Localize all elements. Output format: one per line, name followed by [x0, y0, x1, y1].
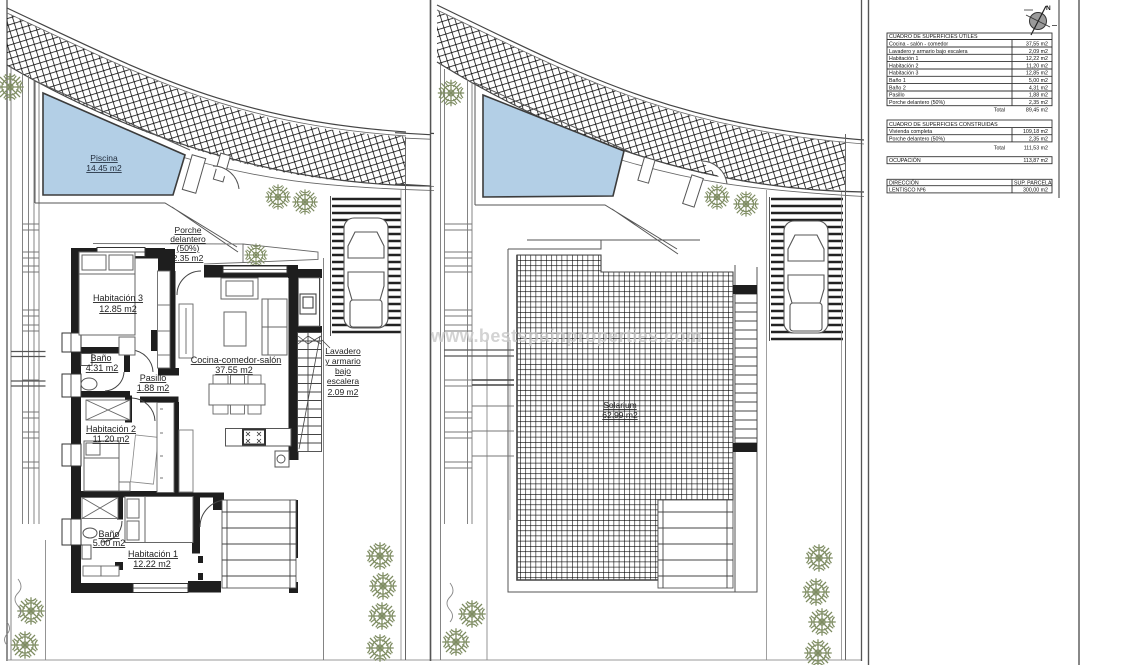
svg-text:12,22 m2: 12,22 m2 — [1026, 56, 1048, 62]
svg-text:Solarium: Solarium — [603, 400, 637, 410]
svg-text:2,35 m2: 2,35 m2 — [1029, 136, 1048, 142]
svg-text:5,00 m2: 5,00 m2 — [1029, 78, 1048, 84]
svg-text:Porche delantero (50%): Porche delantero (50%) — [889, 100, 945, 106]
svg-text:escalera: escalera — [327, 376, 359, 386]
svg-text:1.88 m2: 1.88 m2 — [137, 383, 170, 393]
svg-text:12.22 m2: 12.22 m2 — [133, 559, 171, 569]
svg-text:Habitación 2: Habitación 2 — [86, 424, 136, 434]
svg-text:2.35 m2: 2.35 m2 — [173, 253, 204, 263]
svg-text:y armario: y armario — [325, 356, 361, 366]
svg-text:Vivienda completa: Vivienda completa — [889, 129, 932, 135]
svg-text:OCUPACIÓN: OCUPACIÓN — [889, 157, 921, 164]
svg-text:2.09 m2: 2.09 m2 — [328, 387, 359, 397]
svg-text:CUADRO DE SUPERFICIES ÚTILES: CUADRO DE SUPERFICIES ÚTILES — [889, 33, 978, 40]
svg-text:5.00 m2: 5.00 m2 — [93, 538, 126, 548]
svg-text:DIRECCIÓN: DIRECCIÓN — [889, 180, 919, 187]
svg-text:12,85 m2: 12,85 m2 — [1026, 71, 1048, 77]
svg-text:4,31 m2: 4,31 m2 — [1029, 85, 1048, 91]
svg-text:www.bestspainproperties.com: www.bestspainproperties.com — [430, 326, 702, 346]
svg-text:2,35 m2: 2,35 m2 — [1029, 100, 1048, 106]
svg-text:SUP. PARCELA: SUP. PARCELA — [1014, 181, 1052, 187]
svg-text:12.85 m2: 12.85 m2 — [99, 304, 137, 314]
svg-text:14.45 m2: 14.45 m2 — [86, 163, 122, 173]
svg-text:11.20 m2: 11.20 m2 — [93, 434, 130, 444]
svg-text:Habitación 1: Habitación 1 — [889, 56, 919, 62]
svg-text:(50%): (50%) — [177, 243, 200, 253]
svg-text:113,87 m2: 113,87 m2 — [1023, 158, 1048, 164]
svg-text:Habitación 2: Habitación 2 — [889, 63, 919, 69]
svg-text:2,09 m2: 2,09 m2 — [1029, 49, 1048, 55]
svg-text:4.31 m2: 4.31 m2 — [86, 363, 119, 373]
svg-text:CUADRO DE SUPERFICIES CONSTRUI: CUADRO DE SUPERFICIES CONSTRUIDAS — [889, 122, 998, 128]
svg-text:LENTISCO Nº6: LENTISCO Nº6 — [889, 188, 926, 194]
svg-text:109,18 m2: 109,18 m2 — [1023, 129, 1048, 135]
svg-text:Baño 1: Baño 1 — [889, 78, 906, 84]
svg-text:37,55 m2: 37,55 m2 — [1026, 42, 1048, 48]
svg-text:Baño 2: Baño 2 — [889, 85, 906, 91]
svg-text:Baño: Baño — [90, 353, 111, 363]
svg-text:11,20 m2: 11,20 m2 — [1026, 63, 1048, 69]
svg-text:Total: Total — [994, 146, 1005, 152]
svg-text:bajo: bajo — [335, 366, 351, 376]
svg-text:Habitación 3: Habitación 3 — [889, 71, 919, 77]
svg-text:37.55 m2: 37.55 m2 — [215, 365, 253, 375]
svg-text:111,53 m2: 111,53 m2 — [1024, 146, 1048, 152]
svg-text:Habitación 3: Habitación 3 — [93, 293, 143, 303]
svg-text:300,00 m2: 300,00 m2 — [1023, 188, 1048, 194]
svg-text:Lavadero: Lavadero — [325, 346, 361, 356]
svg-text:Pasillo: Pasillo — [889, 93, 905, 99]
svg-text:Cocina-comedor-salón: Cocina-comedor-salón — [191, 355, 282, 365]
svg-text:Lavadero y armario bajo escale: Lavadero y armario bajo escalera — [889, 49, 968, 55]
svg-text:Total: Total — [994, 108, 1005, 114]
svg-text:Piscina: Piscina — [90, 153, 118, 163]
svg-text:Cocina - salón - comedor: Cocina - salón - comedor — [889, 42, 948, 48]
svg-text:Habitación 1: Habitación 1 — [128, 549, 178, 559]
svg-text:Pasillo: Pasillo — [140, 373, 167, 383]
svg-text:1,88 m2: 1,88 m2 — [1029, 93, 1048, 99]
svg-text:N: N — [1046, 5, 1051, 12]
svg-text:Porche delantero (50%): Porche delantero (50%) — [889, 136, 945, 142]
svg-text:62.99 m2: 62.99 m2 — [602, 410, 638, 420]
svg-text:89,45 m2: 89,45 m2 — [1026, 108, 1048, 114]
